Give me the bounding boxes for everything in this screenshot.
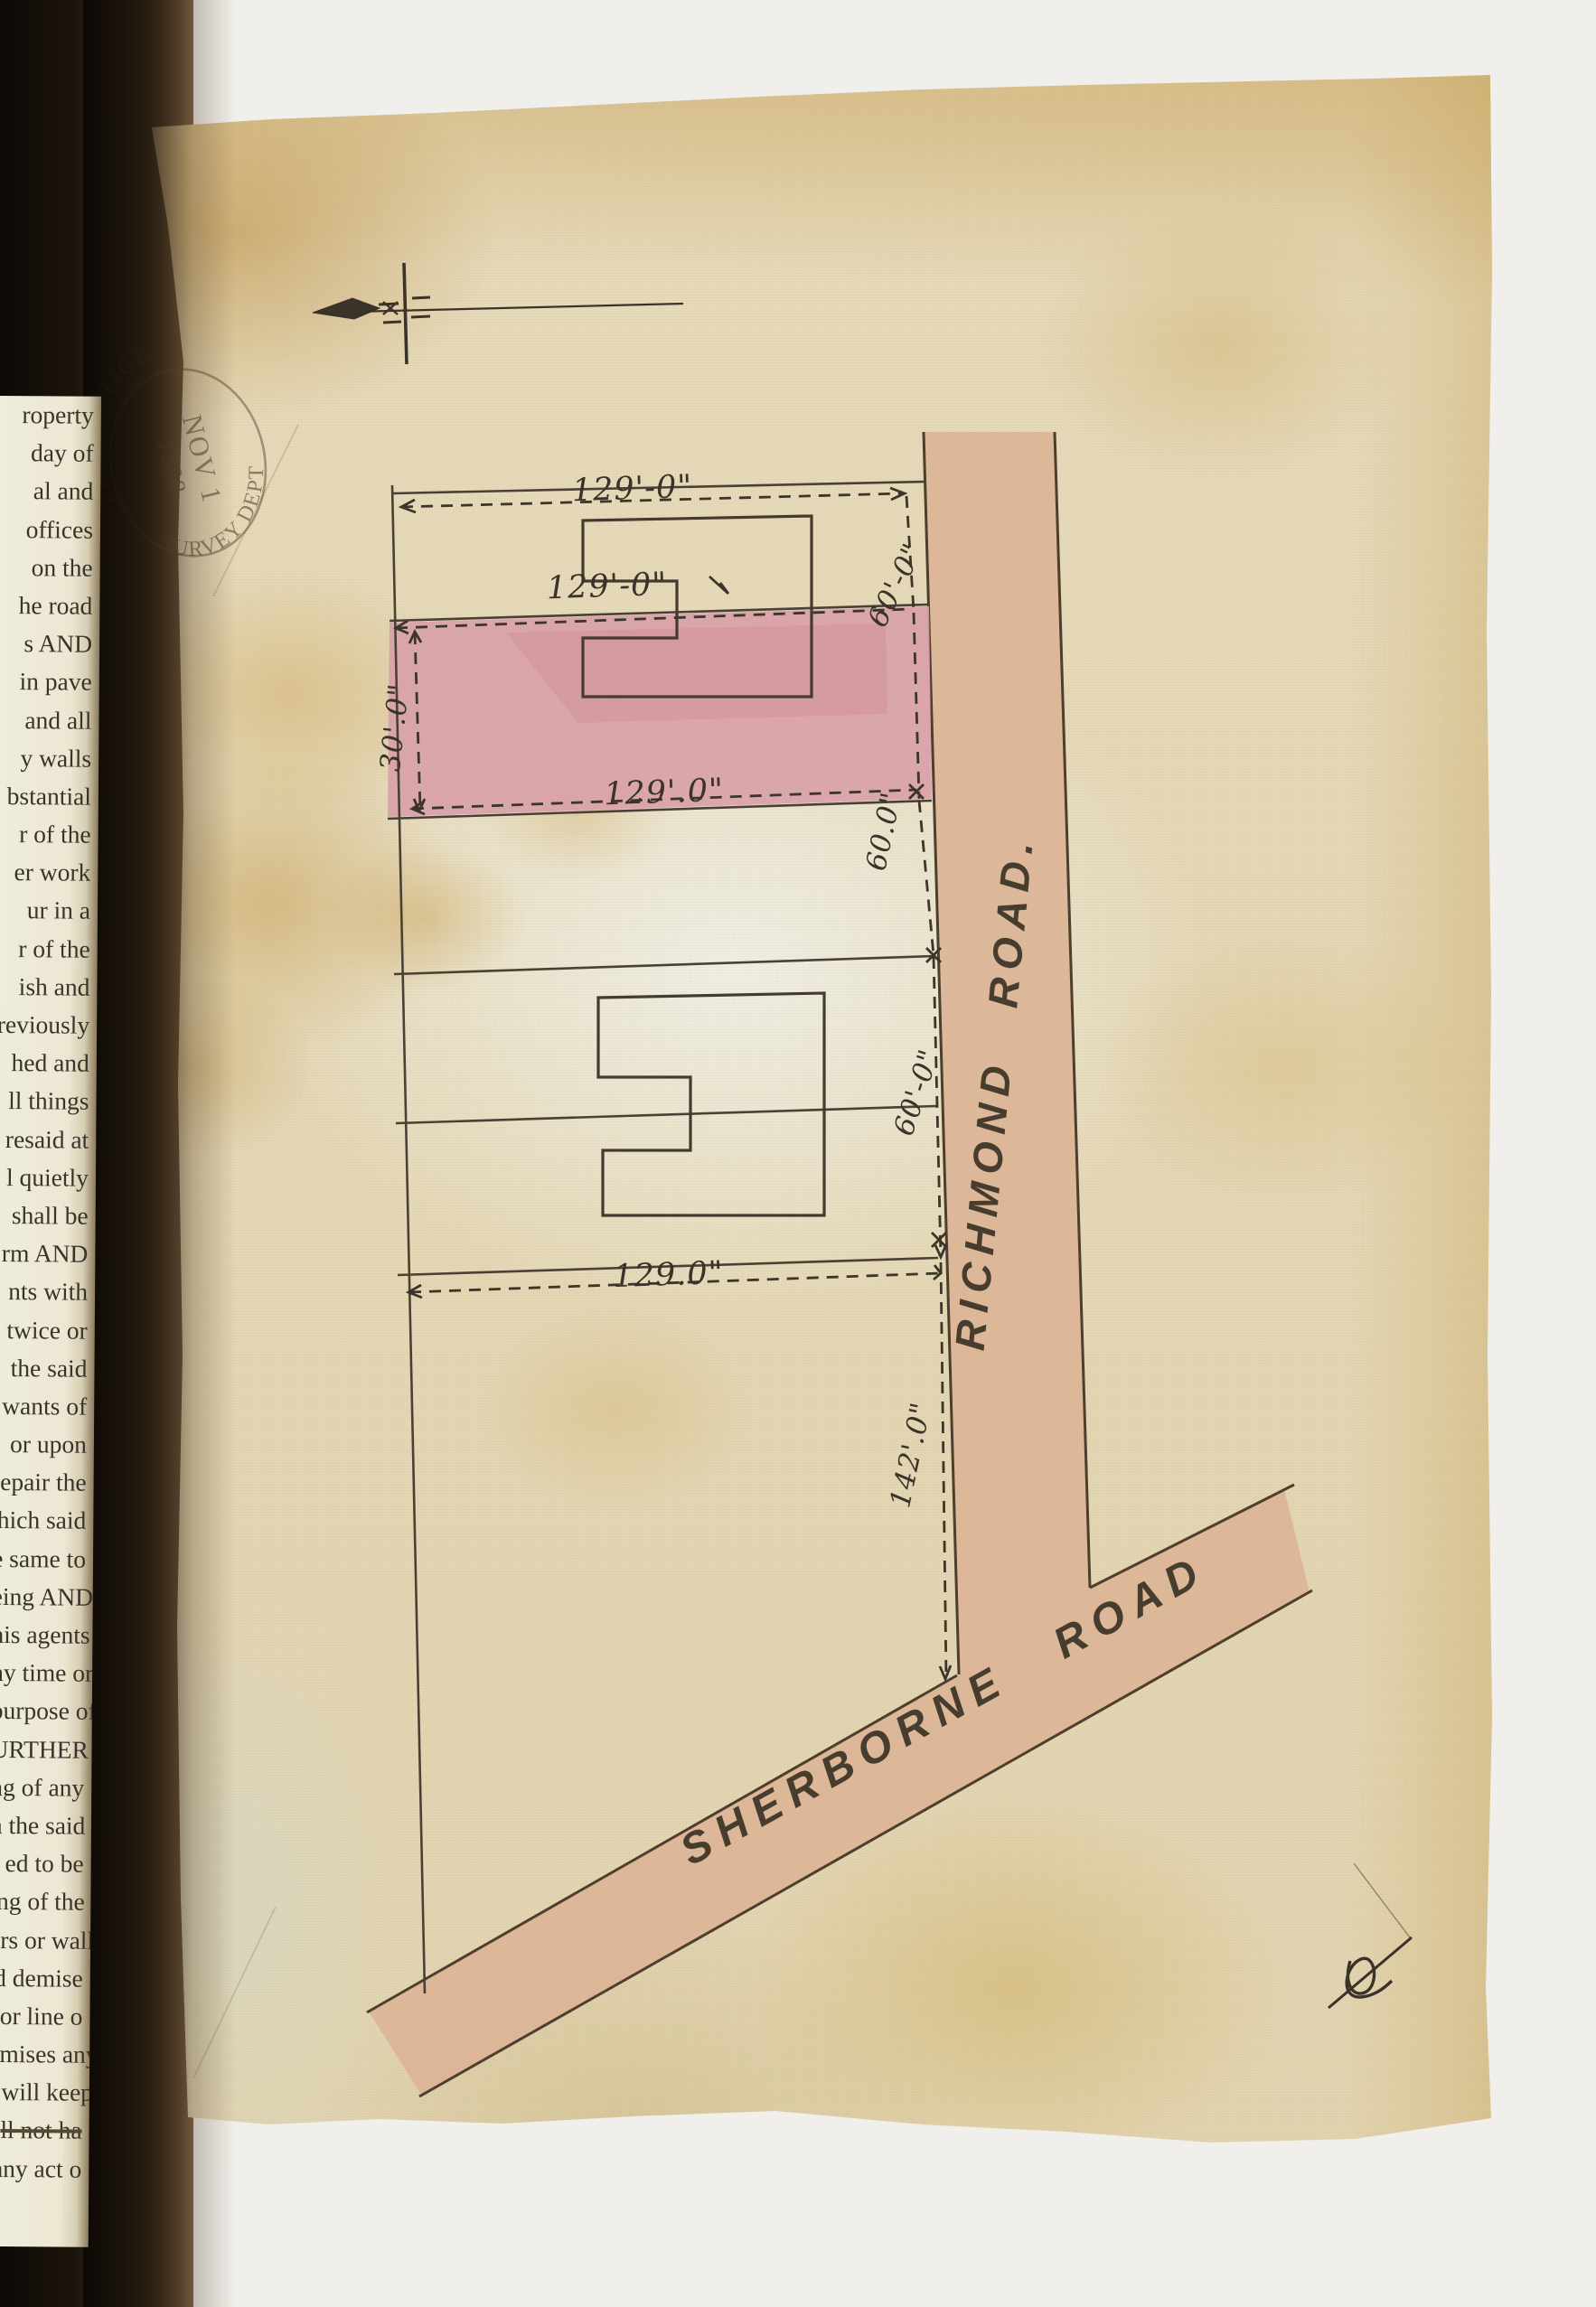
sherborne-road-label: SHERBORNE ROAD bbox=[672, 1545, 1216, 1875]
dim-label-plot-frontage-north: 129'-0" bbox=[546, 567, 668, 607]
deed-text-line: eing AND bbox=[0, 1578, 93, 1617]
deed-text-line: n the said bbox=[0, 1806, 91, 1845]
deed-text-line: bstantial bbox=[0, 777, 99, 816]
deed-text-line: he road bbox=[0, 586, 100, 625]
deed-text-line: his agents bbox=[0, 1616, 93, 1655]
deed-text-line: any act o bbox=[0, 2150, 89, 2189]
building-outline-south bbox=[598, 993, 824, 1215]
dim-label-depth-east-long: 142'.0" bbox=[884, 1399, 938, 1510]
deed-text-line: URTHER bbox=[0, 1730, 92, 1769]
deed-text-line: r of the bbox=[0, 930, 98, 969]
deed-text-line: or line o bbox=[0, 1997, 90, 2036]
north-arrow-icon bbox=[313, 263, 683, 364]
deed-text-line: reviously bbox=[0, 1006, 97, 1045]
deed-text-line: or upon bbox=[0, 1425, 94, 1464]
section-line-4 bbox=[394, 956, 934, 974]
deed-text-line: day of bbox=[0, 434, 101, 473]
deed-text-line: ll things bbox=[0, 1082, 97, 1121]
deed-text-line: e same to bbox=[0, 1540, 93, 1579]
deed-text-line: wants of bbox=[0, 1387, 94, 1426]
deed-text-line: epair the bbox=[0, 1463, 94, 1502]
deed-text-line: ed to be bbox=[0, 1844, 91, 1883]
deed-text-line: roperty bbox=[0, 396, 101, 435]
dim-label-top-frontage: 129'-0" bbox=[571, 469, 693, 510]
deed-text-line: ur in a bbox=[0, 891, 98, 930]
deed-text-line: s AND bbox=[0, 624, 99, 663]
deed-text-line: ny time or bbox=[0, 1654, 92, 1693]
dim-label-plot-frontage-south: 129'.0" bbox=[603, 773, 724, 813]
surveyor-monogram bbox=[1328, 1863, 1412, 2008]
deed-text-line: and all bbox=[0, 700, 99, 739]
deed-text-line: rm AND bbox=[0, 1234, 96, 1273]
section-line-5 bbox=[396, 1106, 936, 1123]
deed-text-line: ll not ha bbox=[0, 2111, 89, 2150]
deed-text-line: nts with bbox=[0, 1272, 95, 1311]
deed-text-line: purpose of bbox=[0, 1692, 92, 1730]
deed-text-line: ing of the bbox=[0, 1882, 91, 1921]
deed-text-line: on the bbox=[0, 549, 100, 587]
deed-text-line: ers or walls bbox=[0, 1920, 90, 1959]
deed-text-line: hich said bbox=[0, 1501, 93, 1540]
dim-label-depth-east-middle: 60.0" bbox=[859, 789, 908, 874]
photographed-deed-map-page: 129'-0" 129'-0" 129'.0" 129.0" 30'.0" 60… bbox=[0, 0, 1596, 2307]
deed-text-line: shall be bbox=[0, 1196, 96, 1235]
deed-text-line: resaid at bbox=[0, 1121, 96, 1159]
dim-line-east-long bbox=[941, 1262, 946, 1678]
deed-text-line: t will keep bbox=[0, 2073, 89, 2112]
dim-line-east-middle bbox=[919, 801, 934, 955]
deed-text-line: emises any bbox=[0, 2035, 89, 2074]
sheet-crease bbox=[193, 1907, 276, 2078]
deed-text-line: y walls bbox=[0, 739, 99, 778]
deed-text-line: in pave bbox=[0, 662, 99, 701]
sherborne-road-sw-edge bbox=[419, 1590, 1312, 2096]
deed-text-line: er work bbox=[0, 853, 98, 892]
deed-text-line: ng of any bbox=[0, 1768, 91, 1807]
deed-text-line: r of the bbox=[0, 815, 99, 854]
adjacent-deed-page-sliver: ropertyday ofal andofficeson thehe roads… bbox=[0, 396, 101, 2247]
deed-text-line: offices bbox=[0, 511, 100, 549]
deed-text-line: ish and bbox=[0, 968, 98, 1007]
deed-text-line: the said bbox=[0, 1349, 95, 1388]
deed-text-line: twice or bbox=[0, 1310, 95, 1349]
deed-text-line: al and bbox=[0, 472, 100, 511]
deed-text-line: hed and bbox=[0, 1044, 97, 1083]
deed-text-line: l quietly bbox=[0, 1158, 96, 1197]
dim-label-lower-frontage: 129.0" bbox=[613, 1255, 725, 1295]
deed-text-line: d demise bbox=[0, 1959, 90, 1998]
